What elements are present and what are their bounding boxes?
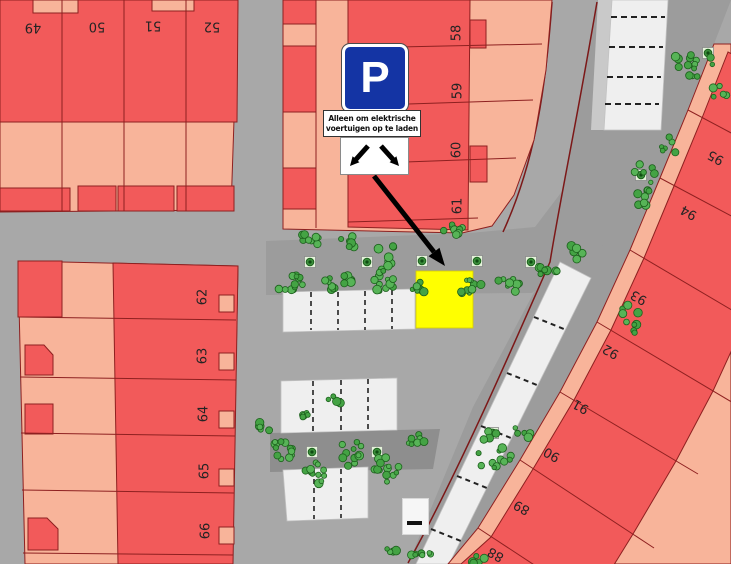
bush-icon xyxy=(291,281,298,288)
bush-icon xyxy=(498,444,507,453)
bush-icon xyxy=(458,288,466,296)
tree-planter xyxy=(307,447,318,458)
bush-icon xyxy=(684,61,691,68)
bush-icon xyxy=(321,467,327,473)
bush-icon xyxy=(636,161,643,168)
bush-icon xyxy=(501,458,508,465)
bush-icon xyxy=(710,62,715,67)
bush-icon xyxy=(641,170,647,176)
bush-icon xyxy=(413,283,420,290)
house-number-49: 49 xyxy=(25,20,42,35)
bush-icon xyxy=(573,255,581,263)
bush-icon xyxy=(305,237,311,243)
bush-icon xyxy=(477,280,485,288)
house-number-50: 50 xyxy=(89,19,106,34)
bush-icon xyxy=(312,233,320,241)
tree-planter xyxy=(472,256,483,267)
bush-icon xyxy=(413,552,418,557)
bush-icon xyxy=(476,451,481,456)
bush-icon xyxy=(331,394,336,399)
bush-icon xyxy=(671,52,680,61)
parking-p-symbol: P xyxy=(360,56,389,100)
bush-icon xyxy=(619,310,627,318)
bush-icon xyxy=(470,559,478,564)
bush-icon xyxy=(420,438,428,446)
bush-icon xyxy=(272,440,277,445)
bush-icon xyxy=(351,447,356,452)
bush-icon xyxy=(257,424,263,430)
bush-icon xyxy=(339,441,345,447)
house-number-64: 64 xyxy=(197,406,212,423)
bush-icon xyxy=(624,319,630,325)
bush-icon xyxy=(634,190,642,198)
tree-planter xyxy=(362,257,373,268)
bush-icon xyxy=(506,279,514,287)
bush-icon xyxy=(631,168,638,175)
bush-icon xyxy=(480,436,488,444)
house-number-60: 60 xyxy=(450,142,465,159)
bush-icon xyxy=(339,454,347,462)
bush-icon xyxy=(273,445,278,450)
house-number-66: 66 xyxy=(199,523,214,540)
bush-icon xyxy=(666,134,672,140)
bush-icon xyxy=(511,287,519,295)
bush-icon xyxy=(687,52,694,59)
bush-icon xyxy=(515,430,521,436)
down-arrows-icon xyxy=(341,138,408,174)
bush-icon xyxy=(624,301,632,309)
road-marker-dash xyxy=(407,521,422,525)
bush-icon xyxy=(420,288,428,296)
parking-sign-subpanel: Alleen om elektrische voertuigen op te l… xyxy=(323,110,421,137)
house-number-51: 51 xyxy=(145,18,162,33)
bush-icon xyxy=(275,285,283,293)
bush-icon xyxy=(711,94,716,99)
bush-icon xyxy=(492,465,497,470)
bush-icon xyxy=(507,457,512,462)
bush-icon xyxy=(374,244,383,253)
road-marker-box xyxy=(402,498,429,535)
bush-icon xyxy=(314,240,321,247)
bush-icon xyxy=(316,472,321,477)
bush-icon xyxy=(300,282,306,288)
bush-icon xyxy=(341,273,348,280)
bush-icon xyxy=(453,231,461,239)
bush-icon xyxy=(384,253,393,262)
bush-icon xyxy=(651,170,659,178)
bush-icon xyxy=(467,278,472,283)
parking-bays-northeast xyxy=(604,0,668,130)
bush-icon xyxy=(278,439,284,445)
bush-icon xyxy=(383,471,391,479)
parking-bays-top xyxy=(283,289,415,332)
bush-icon xyxy=(542,267,548,273)
bush-icon xyxy=(282,287,288,293)
bush-icon xyxy=(474,553,479,558)
bush-icon xyxy=(640,199,648,207)
bush-icon xyxy=(288,448,295,455)
bush-icon xyxy=(694,74,700,80)
bush-icon xyxy=(495,277,502,284)
bush-icon xyxy=(385,547,390,552)
bush-icon xyxy=(326,397,331,402)
bush-icon xyxy=(346,244,352,250)
bush-icon xyxy=(632,330,637,335)
bush-icon xyxy=(384,262,393,271)
bush-icon xyxy=(427,551,432,556)
bush-icon xyxy=(385,479,390,484)
parking-sign-board: P xyxy=(342,44,408,112)
bush-icon xyxy=(274,452,281,459)
sign-text-line2: voertuigen op te laden xyxy=(326,124,418,134)
bush-icon xyxy=(294,274,299,279)
bush-icon xyxy=(709,84,717,92)
tree-planter xyxy=(305,257,316,268)
bush-icon xyxy=(389,243,396,250)
bush-icon xyxy=(632,322,637,327)
bush-icon xyxy=(720,91,726,97)
bush-icon xyxy=(390,276,397,283)
bush-icon xyxy=(307,465,315,473)
bush-icon xyxy=(572,244,580,252)
bush-icon xyxy=(409,442,414,447)
bush-icon xyxy=(373,285,382,294)
bush-icon xyxy=(341,280,348,287)
bush-icon xyxy=(356,453,361,458)
bush-icon xyxy=(354,439,360,445)
bush-icon xyxy=(322,277,329,284)
house-number-62: 62 xyxy=(196,289,211,306)
site-map: P Alleen om elektrische voertuigen op te… xyxy=(0,0,731,564)
bush-icon xyxy=(322,473,327,478)
bush-icon xyxy=(554,268,561,275)
bush-icon xyxy=(395,463,402,470)
bush-icon xyxy=(315,462,320,467)
sign-text-line1: Alleen om elektrische xyxy=(328,114,415,124)
bush-icon xyxy=(440,227,447,234)
parking-sign-arrow-panel xyxy=(340,137,409,175)
bush-icon xyxy=(524,433,533,442)
bush-icon xyxy=(634,308,643,317)
bush-icon xyxy=(717,83,722,88)
bush-icon xyxy=(305,412,310,417)
house-number-52: 52 xyxy=(204,19,221,34)
tree-planter xyxy=(526,257,537,268)
bush-icon xyxy=(649,180,653,184)
house-number-63: 63 xyxy=(196,348,211,365)
bush-icon xyxy=(266,427,273,434)
bush-icon xyxy=(513,426,518,431)
bush-icon xyxy=(660,148,665,153)
house-number-61: 61 xyxy=(451,198,466,215)
bush-icon xyxy=(672,149,679,156)
bush-icon xyxy=(339,236,344,241)
bush-icon xyxy=(377,459,385,467)
bush-icon xyxy=(387,464,392,469)
tree-planter xyxy=(417,256,428,267)
bush-icon xyxy=(319,479,324,484)
bush-icon xyxy=(692,66,697,71)
bush-icon xyxy=(675,63,682,70)
bush-icon xyxy=(420,552,425,557)
bush-icon xyxy=(394,470,399,475)
bush-icon xyxy=(478,462,485,469)
bush-icon xyxy=(345,462,352,469)
house-number-59: 59 xyxy=(451,83,466,100)
bush-icon xyxy=(686,72,694,80)
house-number-58: 58 xyxy=(450,25,465,42)
bush-icon xyxy=(707,54,714,61)
house-number-65: 65 xyxy=(198,463,213,480)
bush-icon xyxy=(468,285,476,293)
